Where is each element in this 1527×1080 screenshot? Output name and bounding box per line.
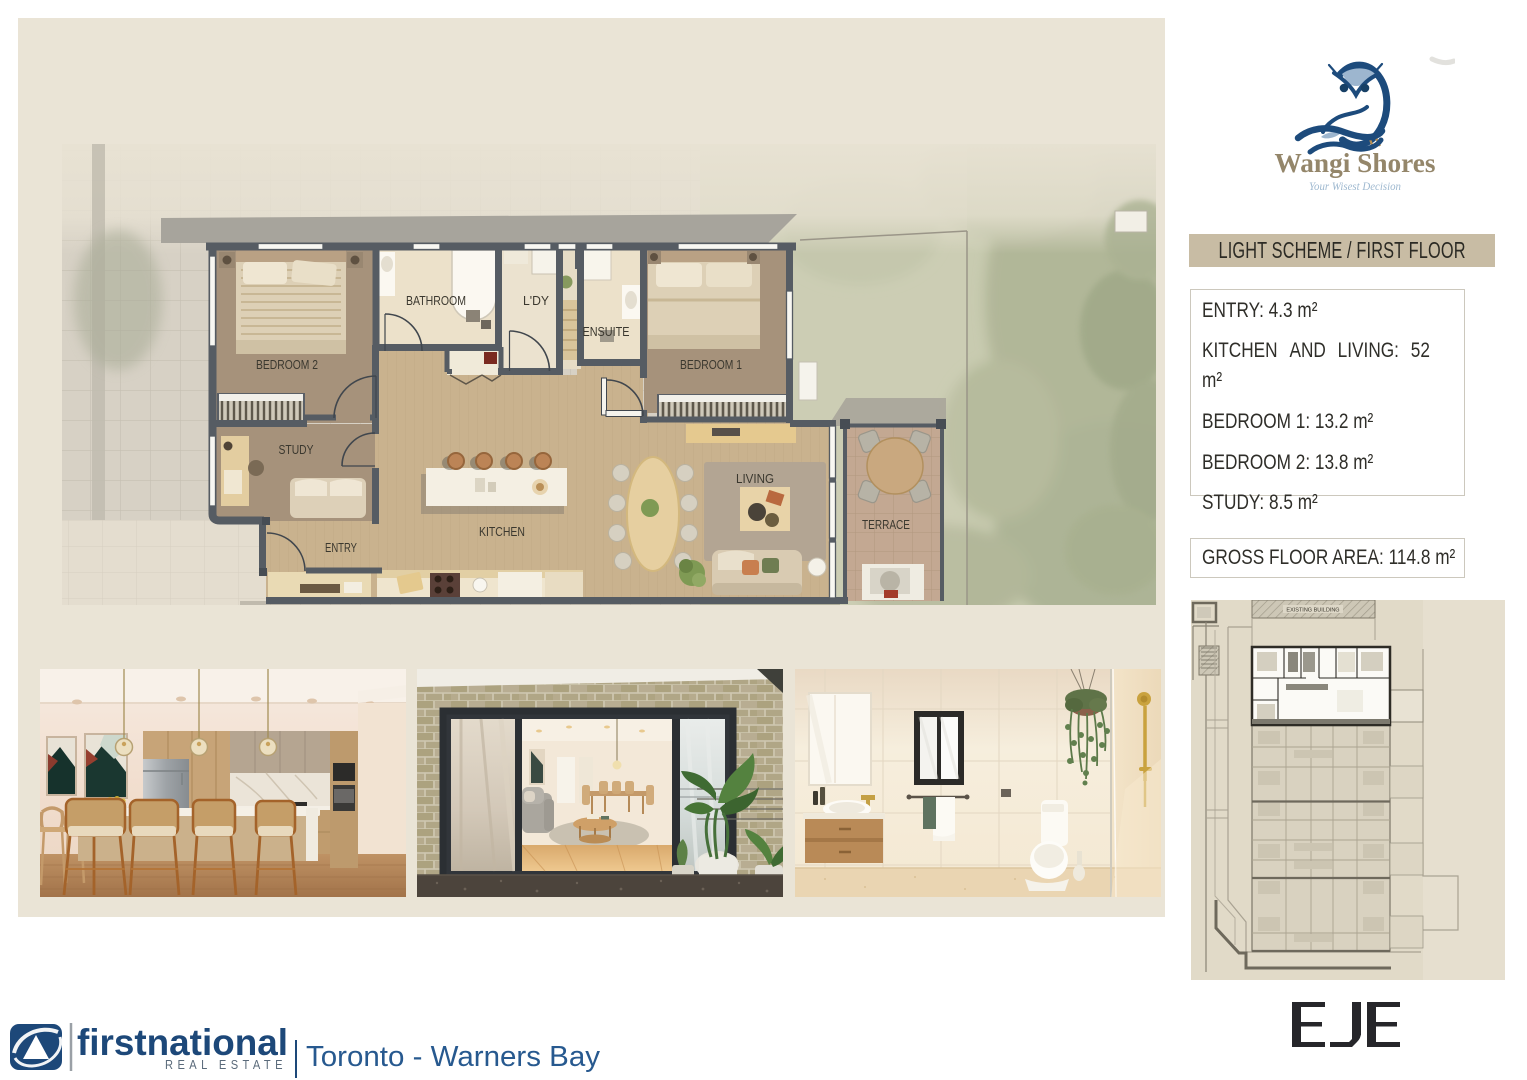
svg-text:Toronto - Warners Bay: Toronto - Warners Bay xyxy=(306,1041,601,1073)
svg-text:BATHROOM: BATHROOM xyxy=(406,294,466,308)
svg-text:TERRACE: TERRACE xyxy=(862,518,910,532)
svg-text:ENSUITE: ENSUITE xyxy=(583,325,630,339)
svg-text:KITCHEN: KITCHEN xyxy=(479,525,525,539)
svg-text:BEDROOM 2: BEDROOM 2 xyxy=(256,358,318,372)
svg-text:L'DY: L'DY xyxy=(523,294,550,308)
svg-text:firstnational: firstnational xyxy=(77,1022,288,1063)
svg-text:STUDY: STUDY xyxy=(279,443,315,457)
svg-text:Wangi Shores: Wangi Shores xyxy=(1275,148,1436,178)
svg-text:REAL ESTATE: REAL ESTATE xyxy=(165,1058,287,1072)
svg-text:Your Wisest Decision: Your Wisest Decision xyxy=(1309,179,1401,193)
svg-text:ENTRY: ENTRY xyxy=(325,541,358,555)
svg-text:LIVING: LIVING xyxy=(736,472,774,486)
svg-text:BEDROOM 1: BEDROOM 1 xyxy=(680,358,742,372)
svg-text:EXISTING BUILDING: EXISTING BUILDING xyxy=(1286,608,1339,614)
